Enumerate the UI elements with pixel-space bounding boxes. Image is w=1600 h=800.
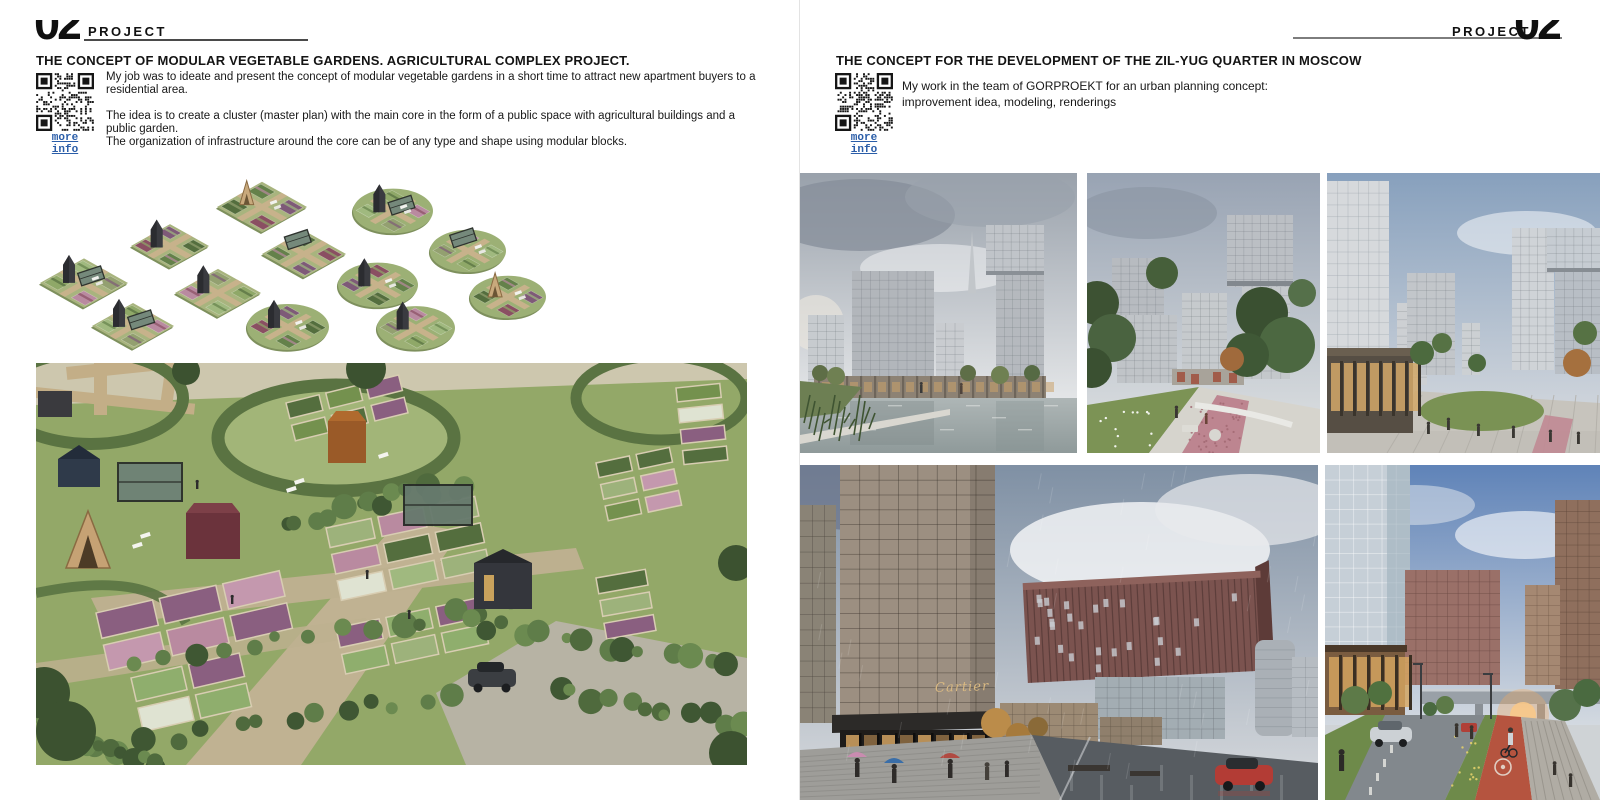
render-street-towers xyxy=(1327,173,1600,453)
garden-modules-illustration xyxy=(36,166,750,358)
left-page: 02 PROJECT THE CONCEPT OF MODULAR VEGETA… xyxy=(0,0,800,800)
right-paragraphs: My work in the team of GORPROEKT for an … xyxy=(902,79,1302,110)
render-bike-lane xyxy=(1325,465,1600,800)
more-info-link-right[interactable]: more info xyxy=(835,132,893,156)
left-paragraph-1: My job was to ideate and present the con… xyxy=(106,71,761,97)
page-number-right: 02 xyxy=(1514,20,1560,43)
left-paragraphs: My job was to ideate and present the con… xyxy=(106,71,761,149)
right-paragraph-1: My work in the team of GORPROEKT for an … xyxy=(902,79,1302,110)
render-pond-plaza xyxy=(800,173,1077,453)
left-title: THE CONCEPT OF MODULAR VEGETABLE GARDENS… xyxy=(36,53,630,68)
left-paragraph-2: The idea is to create a cluster (master … xyxy=(106,110,761,136)
qr-code-left xyxy=(36,73,94,131)
header-rule-left xyxy=(84,39,308,41)
page-number-left: 02 xyxy=(34,20,80,43)
storefront-sign: Cartier xyxy=(935,679,990,696)
more-info-link-left[interactable]: more info xyxy=(36,132,94,156)
left-paragraph-3: The organization of infrastructure aroun… xyxy=(106,136,761,149)
portfolio-spread: 02 PROJECT THE CONCEPT OF MODULAR VEGETA… xyxy=(0,0,1600,800)
header-label-left: PROJECT xyxy=(88,24,167,39)
render-park-path xyxy=(1087,173,1320,453)
page-fold-divider xyxy=(799,0,800,800)
right-title: THE CONCEPT FOR THE DEVELOPMENT OF THE Z… xyxy=(836,53,1362,68)
render-rainy-boulevard xyxy=(800,465,1318,800)
qr-code-right xyxy=(835,73,893,131)
garden-aerial-rendering xyxy=(36,363,747,765)
right-page: PROJECT 02 THE CONCEPT FOR THE DEVELOPME… xyxy=(800,0,1600,800)
